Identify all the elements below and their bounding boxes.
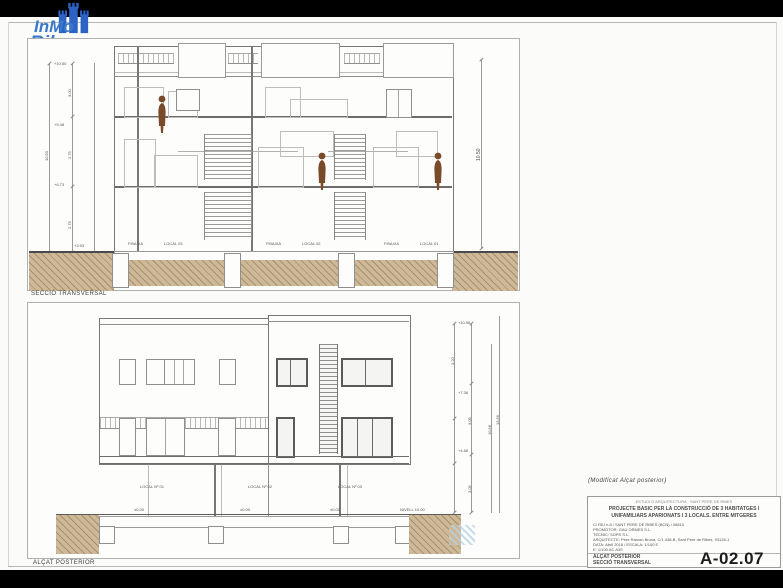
ground-hatch-left <box>29 251 114 291</box>
dim-text: 10.50 <box>477 148 482 161</box>
water-mark <box>449 525 475 545</box>
level-text: +3.93 <box>74 244 84 248</box>
level-text: ±0.00 <box>134 508 144 512</box>
room-outline <box>154 155 198 188</box>
stair-run <box>204 192 252 240</box>
person-figure <box>156 95 168 135</box>
level-text: +10.50 <box>54 62 66 66</box>
room-outline <box>124 139 156 188</box>
section-caption: SECCIÓ TRANSVERSAL <box>31 291 107 297</box>
level-text: +7.36 <box>458 391 468 395</box>
roof-railing <box>118 53 174 64</box>
window <box>119 359 136 385</box>
dim-text: 10.56 <box>488 425 492 435</box>
window-dark <box>341 417 393 458</box>
stair-bulkhead <box>383 43 454 78</box>
balcony-door <box>218 418 236 456</box>
dim-text: 3.05 <box>468 485 472 493</box>
sheet-number: A-02.07 <box>700 549 764 569</box>
foundation-pad <box>333 526 349 544</box>
project-title-line1: PROJECTE BASIC PER LA CONSTRUCCIÓ DE 3 H… <box>590 507 778 512</box>
ground-hatch-under <box>114 260 452 286</box>
elevation-caption: ALÇAT POSTERIOR <box>33 560 95 566</box>
title-block: ESTUDI D'ARQUITECTURA · SANT PERE DE RIB… <box>587 496 781 568</box>
window-dark <box>276 358 308 387</box>
foundation-pad <box>224 253 241 288</box>
project-title-line2: UNIFAMILIARS APARIONATS I 3 LOCALS. ENTR… <box>590 514 778 519</box>
sheet-title-2: SECCIÓ TRANSVERSAL <box>593 561 651 566</box>
foundation-pad <box>112 253 129 288</box>
dim-text: 2.75 <box>68 221 72 229</box>
dim-line <box>49 63 50 253</box>
info-line: E: 1/100 AC A3S <box>593 548 623 552</box>
unit-name-label: LOCAL 03 <box>164 242 183 246</box>
sheet-border-right <box>776 22 777 566</box>
person-figure <box>432 152 444 192</box>
dim-text: 10.50 <box>45 151 49 161</box>
window <box>164 359 195 385</box>
unit-name-label: LOCAL 01 <box>420 242 439 246</box>
person-figure <box>316 152 328 192</box>
level-text: +9.48 <box>54 123 64 127</box>
unit-name-label: LOCAL 02 <box>302 242 321 246</box>
titleblock-header: ESTUDI D'ARQUITECTURA · SANT PERE DE RIB… <box>594 500 774 504</box>
sheet-border-left <box>8 22 9 566</box>
stair-bulkhead <box>261 43 340 78</box>
revision-note: (Modificat Alçat posterior) <box>588 478 667 484</box>
screenshot: InMo Ribes 10.50 3.00 2.75 2.75 +10.50 +… <box>0 0 783 588</box>
dim-text: 2.75 <box>68 151 72 159</box>
dim-line <box>72 63 73 253</box>
window <box>386 89 412 118</box>
level-text: ±0.00 <box>240 508 250 512</box>
balcony-door <box>146 418 185 456</box>
section-drawing: 10.50 3.00 2.75 2.75 +10.50 +9.48 +6.73 … <box>27 38 520 291</box>
ground-hatch-right <box>452 251 518 291</box>
dim-line <box>94 63 95 253</box>
sheet-border-top <box>8 22 777 23</box>
window <box>219 359 236 385</box>
local-label: LOCAL Nº 03 <box>338 485 362 489</box>
stair-bulkhead <box>178 43 226 78</box>
dim-text: 3.20 <box>451 357 455 365</box>
stair-tower <box>319 344 338 454</box>
grade-level-text: NIVELL ±0.00 <box>400 508 425 512</box>
level-text: +6.73 <box>54 183 64 187</box>
window-dark <box>341 358 393 387</box>
foundation-pad <box>437 253 454 288</box>
room-outline <box>290 99 348 118</box>
level-text: ±0.00 <box>330 508 340 512</box>
door-leaf <box>176 89 200 111</box>
column <box>214 464 216 516</box>
level-text: +4.56 <box>458 449 468 453</box>
level-text: +10.56 <box>458 321 470 325</box>
window <box>146 359 165 385</box>
dim-text: 3.05 <box>468 417 472 425</box>
roof-railing <box>228 53 258 64</box>
foundation-pad <box>338 253 355 288</box>
dim-text: 3.00 <box>68 89 72 97</box>
base-slab <box>99 516 411 528</box>
unit-level-label: P.BAIXA <box>128 242 143 246</box>
roof-railing <box>344 53 380 64</box>
ground-hatch-left <box>56 515 99 554</box>
dim-text: 13.56 <box>496 415 500 425</box>
window-dark <box>276 417 295 458</box>
stair-run <box>334 192 366 240</box>
unit-level-label: P.BAIXA <box>266 242 281 246</box>
balcony-door <box>119 418 136 456</box>
unit-level-label: P.BAIXA <box>384 242 399 246</box>
foundation-pad <box>99 526 115 544</box>
grade-line <box>56 514 461 515</box>
stair-run <box>334 134 366 180</box>
elevation-drawing: LOCAL Nº 01 LOCAL Nº 02 LOCAL Nº 03 ±0.0… <box>27 302 520 559</box>
foundation-pad <box>208 526 224 544</box>
local-label: LOCAL Nº 01 <box>140 485 164 489</box>
stair-run <box>204 134 252 180</box>
local-label: LOCAL Nº 02 <box>248 485 272 489</box>
